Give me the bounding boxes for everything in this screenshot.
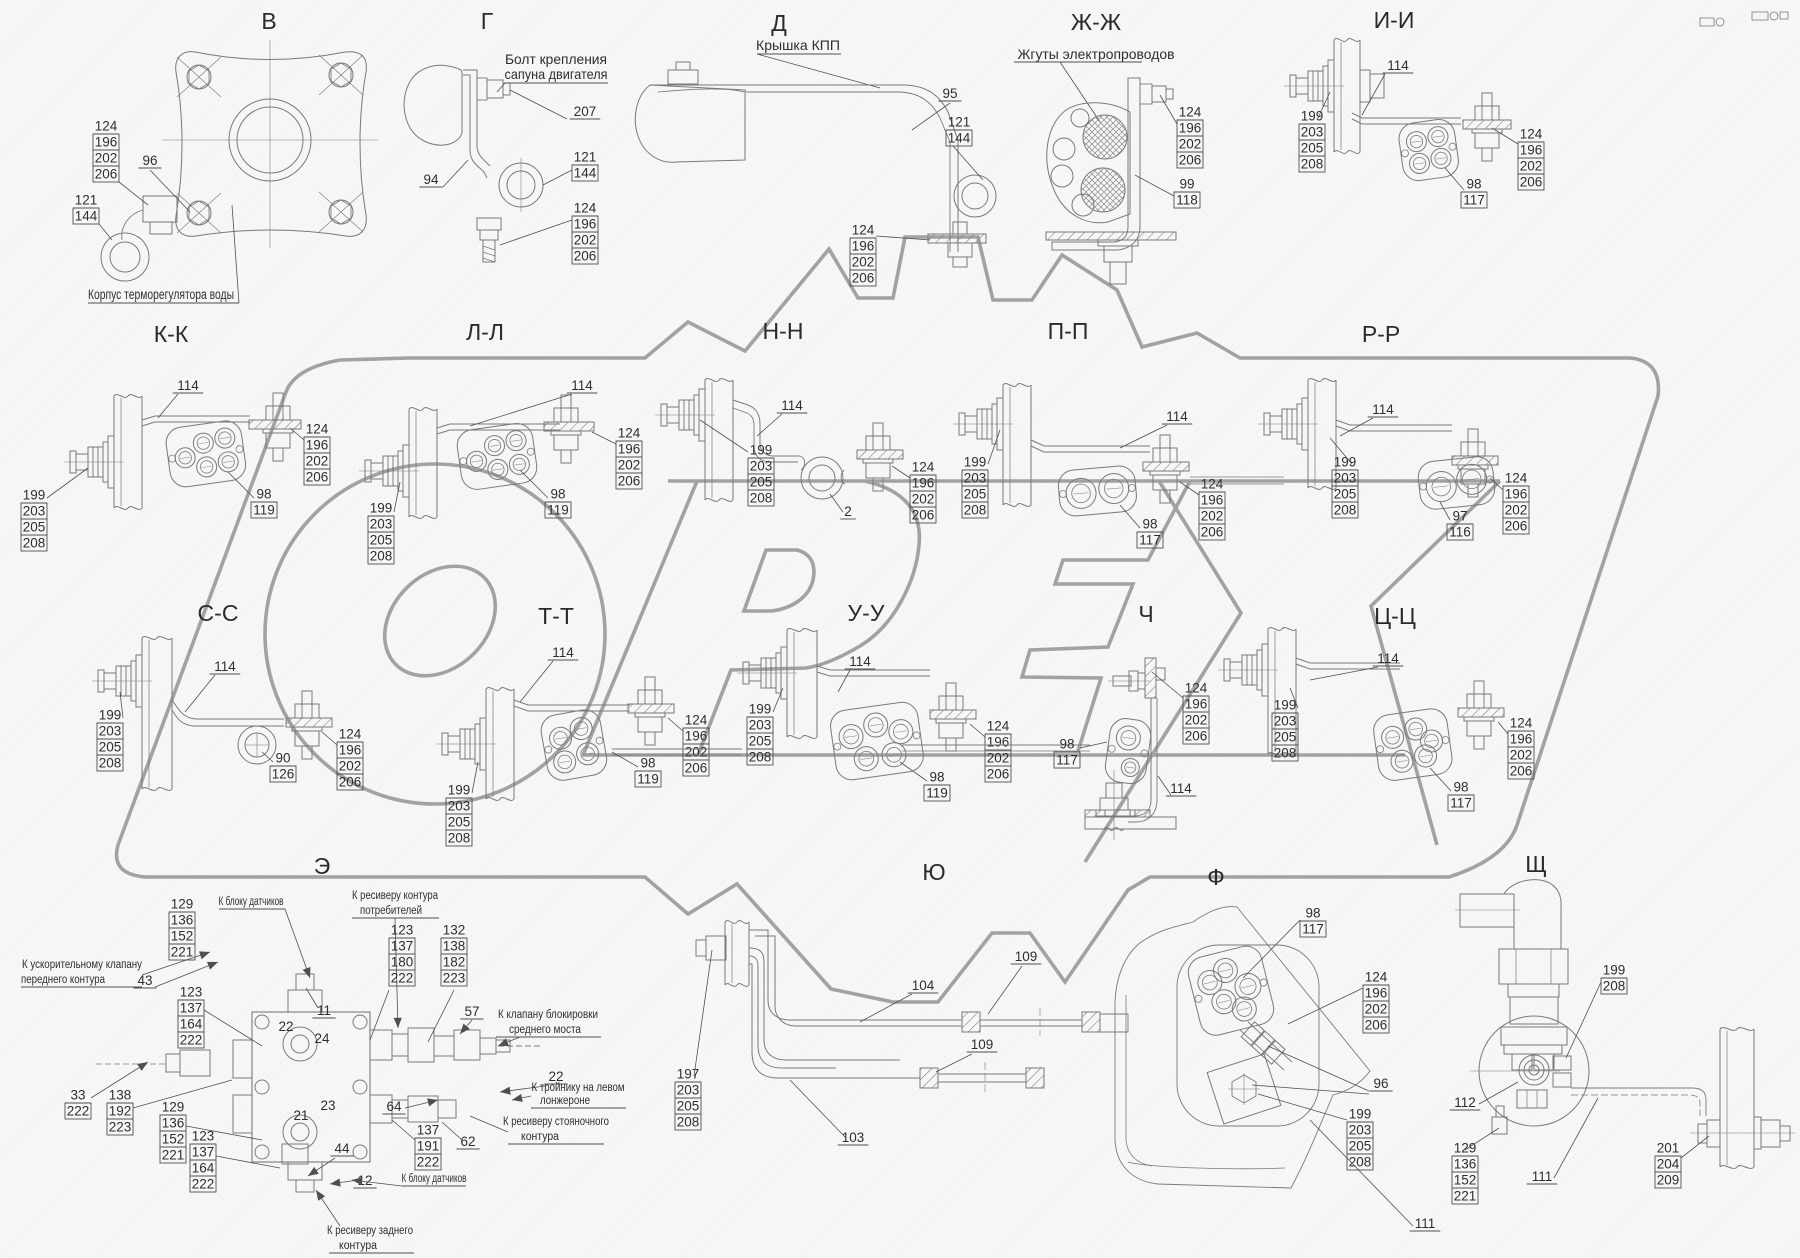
svg-text:208: 208	[23, 536, 46, 551]
svg-text:111: 111	[1532, 1169, 1553, 1184]
svg-text:Ц-Ц: Ц-Ц	[1374, 603, 1416, 629]
svg-text:152: 152	[1454, 1173, 1477, 1188]
svg-text:206: 206	[1185, 729, 1208, 744]
svg-text:206: 206	[1505, 519, 1528, 534]
svg-text:205: 205	[677, 1099, 700, 1114]
svg-text:136: 136	[171, 913, 194, 928]
svg-text:119: 119	[547, 503, 569, 518]
svg-text:К ускорительному клапану: К ускорительному клапану	[22, 959, 142, 971]
svg-text:164: 164	[180, 1017, 203, 1032]
svg-text:136: 136	[162, 1116, 185, 1131]
svg-text:129: 129	[1454, 1141, 1477, 1156]
svg-text:196: 196	[306, 438, 329, 453]
svg-text:144: 144	[574, 166, 597, 181]
svg-text:204: 204	[1657, 1157, 1680, 1172]
svg-text:203: 203	[1274, 714, 1297, 729]
svg-text:206: 206	[1510, 764, 1533, 779]
svg-text:196: 196	[339, 743, 362, 758]
svg-text:205: 205	[1334, 487, 1357, 502]
svg-text:К ресиверу контура: К ресиверу контура	[352, 890, 438, 902]
svg-text:206: 206	[574, 249, 597, 264]
svg-text:119: 119	[253, 503, 275, 518]
svg-text:124: 124	[339, 727, 362, 742]
svg-text:202: 202	[339, 759, 362, 774]
svg-text:114: 114	[1170, 781, 1192, 796]
svg-text:205: 205	[370, 533, 393, 548]
svg-text:132: 132	[443, 923, 466, 938]
svg-text:196: 196	[852, 239, 875, 254]
svg-text:206: 206	[1179, 153, 1202, 168]
svg-text:99: 99	[1179, 177, 1194, 192]
svg-text:Крышка КПП: Крышка КПП	[756, 38, 840, 53]
svg-text:138: 138	[109, 1088, 132, 1103]
svg-text:202: 202	[987, 751, 1010, 766]
svg-text:23: 23	[320, 1098, 335, 1113]
svg-text:переднего контура: переднего контура	[21, 974, 106, 986]
svg-text:203: 203	[99, 724, 122, 739]
svg-text:196: 196	[685, 729, 708, 744]
svg-text:206: 206	[339, 775, 362, 790]
svg-text:138: 138	[443, 939, 466, 954]
svg-text:223: 223	[109, 1120, 132, 1135]
svg-text:208: 208	[1603, 979, 1626, 994]
svg-text:сапуна двигателя: сапуна двигателя	[505, 67, 608, 82]
svg-text:206: 206	[95, 167, 118, 182]
svg-text:Э: Э	[314, 853, 331, 879]
svg-text:Г: Г	[481, 8, 494, 34]
svg-text:62: 62	[460, 1134, 475, 1149]
svg-text:Корпус терморегулятора воды: Корпус терморегулятора воды	[88, 287, 234, 302]
svg-text:24: 24	[314, 1031, 330, 1046]
svg-text:199: 199	[1274, 698, 1297, 713]
svg-text:144: 144	[948, 131, 971, 146]
svg-text:202: 202	[618, 458, 641, 473]
svg-text:137: 137	[391, 939, 414, 954]
svg-text:203: 203	[1334, 471, 1357, 486]
svg-text:199: 199	[23, 488, 46, 503]
svg-text:202: 202	[574, 233, 597, 248]
svg-text:221: 221	[171, 945, 194, 960]
svg-text:123: 123	[180, 985, 203, 1000]
svg-text:199: 199	[99, 708, 122, 723]
svg-text:Щ: Щ	[1525, 851, 1547, 877]
svg-text:208: 208	[749, 750, 772, 765]
svg-text:203: 203	[370, 517, 393, 532]
svg-text:111: 111	[1415, 1216, 1436, 1231]
svg-text:Т-Т: Т-Т	[538, 603, 574, 629]
svg-text:124: 124	[1520, 127, 1543, 142]
svg-text:222: 222	[180, 1033, 203, 1048]
svg-text:208: 208	[677, 1115, 700, 1130]
svg-text:208: 208	[964, 503, 987, 518]
svg-text:144: 144	[75, 209, 98, 224]
svg-text:124: 124	[1510, 716, 1533, 731]
svg-text:199: 199	[448, 783, 471, 798]
svg-text:208: 208	[750, 491, 773, 506]
svg-text:98: 98	[1453, 780, 1468, 795]
svg-text:196: 196	[1510, 732, 1533, 747]
svg-text:116: 116	[1449, 525, 1471, 540]
svg-text:205: 205	[448, 815, 471, 830]
svg-text:199: 199	[1349, 1107, 1372, 1122]
svg-text:199: 199	[964, 455, 987, 470]
svg-text:196: 196	[618, 442, 641, 457]
svg-text:114: 114	[552, 645, 574, 660]
svg-text:117: 117	[1450, 796, 1472, 811]
svg-text:206: 206	[987, 767, 1010, 782]
svg-text:208: 208	[1349, 1155, 1372, 1170]
svg-text:98: 98	[1305, 906, 1320, 921]
svg-text:222: 222	[192, 1177, 215, 1192]
svg-text:205: 205	[749, 734, 772, 749]
svg-text:196: 196	[1201, 493, 1224, 508]
svg-text:43: 43	[137, 973, 152, 988]
svg-text:221: 221	[1454, 1189, 1477, 1204]
svg-text:98: 98	[929, 770, 944, 785]
svg-text:Д: Д	[771, 10, 787, 36]
svg-text:202: 202	[852, 255, 875, 270]
svg-text:96: 96	[1373, 1076, 1388, 1091]
svg-text:124: 124	[618, 426, 641, 441]
svg-text:209: 209	[1657, 1173, 1680, 1188]
svg-text:206: 206	[306, 470, 329, 485]
svg-text:202: 202	[1510, 748, 1533, 763]
svg-text:206: 206	[618, 474, 641, 489]
svg-text:В: В	[261, 8, 276, 34]
svg-text:11: 11	[317, 1003, 331, 1018]
svg-text:208: 208	[448, 831, 471, 846]
svg-text:121: 121	[574, 150, 597, 165]
svg-text:контура: контура	[521, 1131, 560, 1143]
svg-text:202: 202	[1505, 503, 1528, 518]
svg-text:124: 124	[95, 119, 118, 134]
svg-text:114: 114	[214, 659, 236, 674]
svg-text:К-К: К-К	[154, 321, 189, 347]
svg-text:126: 126	[272, 767, 295, 782]
svg-text:90: 90	[275, 751, 290, 766]
svg-text:П-П: П-П	[1048, 318, 1089, 344]
svg-text:222: 222	[67, 1104, 90, 1119]
svg-text:164: 164	[192, 1161, 215, 1176]
svg-text:117: 117	[1056, 753, 1078, 768]
svg-text:202: 202	[685, 745, 708, 760]
svg-text:контура: контура	[339, 1240, 378, 1252]
svg-text:196: 196	[912, 476, 935, 491]
svg-text:129: 129	[162, 1100, 185, 1115]
svg-text:223: 223	[443, 971, 466, 986]
svg-text:97: 97	[1452, 509, 1467, 524]
svg-text:129: 129	[171, 897, 194, 912]
svg-text:К ресиверу заднего: К ресиверу заднего	[327, 1225, 413, 1237]
svg-text:206: 206	[852, 271, 875, 286]
svg-text:203: 203	[677, 1083, 700, 1098]
svg-text:104: 104	[912, 978, 935, 993]
svg-text:У-У: У-У	[848, 600, 885, 626]
svg-text:94: 94	[423, 172, 439, 187]
svg-text:222: 222	[417, 1155, 440, 1170]
svg-text:203: 203	[749, 718, 772, 733]
svg-text:196: 196	[987, 735, 1010, 750]
svg-text:98: 98	[1142, 517, 1157, 532]
svg-text:202: 202	[1201, 509, 1224, 524]
svg-text:Жгуты электропроводов: Жгуты электропроводов	[1018, 47, 1175, 62]
svg-text:95: 95	[942, 86, 957, 101]
svg-text:Ф: Ф	[1207, 864, 1225, 890]
svg-text:208: 208	[370, 549, 393, 564]
svg-text:208: 208	[1274, 746, 1297, 761]
svg-text:137: 137	[417, 1123, 440, 1138]
svg-text:203: 203	[964, 471, 987, 486]
svg-text:208: 208	[99, 756, 122, 771]
svg-text:117: 117	[1463, 193, 1485, 208]
svg-text:Р-Р: Р-Р	[1362, 321, 1400, 347]
svg-text:119: 119	[926, 786, 948, 801]
svg-text:121: 121	[75, 193, 98, 208]
svg-text:С-С: С-С	[198, 600, 239, 626]
svg-text:124: 124	[1505, 471, 1528, 486]
svg-text:203: 203	[750, 459, 773, 474]
svg-text:21: 21	[293, 1108, 308, 1123]
svg-text:Ю: Ю	[922, 859, 945, 885]
svg-text:124: 124	[1365, 970, 1388, 985]
svg-text:201: 201	[1657, 1141, 1680, 1156]
svg-text:114: 114	[177, 378, 199, 393]
svg-text:117: 117	[1302, 922, 1324, 937]
svg-text:98: 98	[1059, 737, 1074, 752]
svg-text:152: 152	[171, 929, 194, 944]
svg-text:137: 137	[180, 1001, 203, 1016]
svg-text:191: 191	[417, 1139, 440, 1154]
svg-text:205: 205	[23, 520, 46, 535]
svg-text:208: 208	[1334, 503, 1357, 518]
svg-text:57: 57	[464, 1004, 479, 1019]
svg-text:203: 203	[1301, 125, 1324, 140]
svg-text:182: 182	[443, 955, 466, 970]
svg-text:124: 124	[912, 460, 935, 475]
svg-text:К тройнику на левом: К тройнику на левом	[532, 1082, 625, 1094]
svg-text:И-И: И-И	[1374, 7, 1415, 33]
svg-text:потребителей: потребителей	[360, 905, 422, 917]
svg-text:196: 196	[1185, 697, 1208, 712]
svg-text:119: 119	[637, 772, 659, 787]
svg-text:196: 196	[1179, 121, 1202, 136]
svg-text:199: 199	[370, 501, 393, 516]
svg-text:199: 199	[1301, 109, 1324, 124]
svg-text:среднего моста: среднего моста	[509, 1024, 582, 1036]
svg-text:196: 196	[574, 217, 597, 232]
svg-text:202: 202	[1185, 713, 1208, 728]
svg-text:199: 199	[749, 702, 772, 717]
svg-text:114: 114	[1166, 409, 1188, 424]
svg-text:202: 202	[912, 492, 935, 507]
svg-text:205: 205	[1301, 141, 1324, 156]
svg-text:202: 202	[95, 151, 118, 166]
svg-text:205: 205	[1274, 730, 1297, 745]
svg-text:205: 205	[964, 487, 987, 502]
svg-text:2: 2	[844, 504, 852, 519]
svg-text:109: 109	[1015, 949, 1038, 964]
svg-text:123: 123	[192, 1129, 215, 1144]
svg-text:199: 199	[1603, 963, 1626, 978]
svg-text:203: 203	[448, 799, 471, 814]
svg-text:206: 206	[1520, 175, 1543, 190]
svg-text:206: 206	[1365, 1018, 1388, 1033]
svg-text:222: 222	[391, 971, 414, 986]
svg-text:203: 203	[1349, 1123, 1372, 1138]
svg-text:Ч: Ч	[1138, 601, 1153, 627]
svg-text:22: 22	[278, 1019, 293, 1034]
svg-text:114: 114	[1372, 402, 1394, 417]
svg-text:124: 124	[1179, 105, 1202, 120]
svg-text:136: 136	[1454, 1157, 1477, 1172]
svg-text:98: 98	[256, 487, 271, 502]
svg-text:98: 98	[640, 756, 655, 771]
svg-text:152: 152	[162, 1132, 185, 1147]
svg-text:196: 196	[95, 135, 118, 150]
svg-text:137: 137	[192, 1145, 215, 1160]
svg-text:117: 117	[1139, 533, 1161, 548]
svg-text:196: 196	[1505, 487, 1528, 502]
svg-text:206: 206	[685, 761, 708, 776]
svg-text:Ж-Ж: Ж-Ж	[1071, 9, 1121, 35]
svg-text:206: 206	[1201, 525, 1224, 540]
svg-text:Болт крепления: Болт крепления	[505, 52, 607, 67]
svg-text:121: 121	[948, 115, 971, 130]
svg-text:114: 114	[1377, 651, 1399, 666]
svg-text:202: 202	[1365, 1002, 1388, 1017]
svg-text:199: 199	[1334, 455, 1357, 470]
svg-text:205: 205	[750, 475, 773, 490]
svg-text:96: 96	[142, 153, 157, 168]
svg-text:К блоку датчиков: К блоку датчиков	[402, 1173, 467, 1185]
svg-text:221: 221	[162, 1148, 185, 1163]
svg-text:33: 33	[70, 1088, 85, 1103]
svg-text:202: 202	[1520, 159, 1543, 174]
svg-text:114: 114	[849, 654, 871, 669]
svg-text:124: 124	[685, 713, 708, 728]
svg-text:203: 203	[23, 504, 46, 519]
svg-text:124: 124	[574, 201, 597, 216]
svg-text:208: 208	[1301, 157, 1324, 172]
svg-text:118: 118	[1176, 193, 1198, 208]
svg-text:180: 180	[391, 955, 414, 970]
svg-text:124: 124	[1185, 681, 1208, 696]
svg-text:44: 44	[334, 1141, 350, 1156]
svg-text:98: 98	[1466, 177, 1481, 192]
svg-text:199: 199	[750, 443, 773, 458]
svg-text:206: 206	[912, 508, 935, 523]
svg-text:124: 124	[987, 719, 1010, 734]
svg-text:205: 205	[99, 740, 122, 755]
svg-text:196: 196	[1520, 143, 1543, 158]
svg-text:192: 192	[109, 1104, 132, 1119]
svg-text:114: 114	[781, 398, 803, 413]
svg-text:Л-Л: Л-Л	[466, 319, 504, 345]
svg-text:лонжероне: лонжероне	[540, 1095, 590, 1107]
svg-text:109: 109	[971, 1037, 994, 1052]
svg-text:К клапану блокировки: К клапану блокировки	[498, 1009, 598, 1021]
svg-text:124: 124	[306, 422, 329, 437]
svg-text:112: 112	[1454, 1095, 1476, 1110]
svg-text:202: 202	[306, 454, 329, 469]
svg-text:124: 124	[852, 223, 875, 238]
svg-text:114: 114	[1387, 58, 1409, 73]
svg-text:114: 114	[571, 378, 593, 393]
svg-text:205: 205	[1349, 1139, 1372, 1154]
svg-text:К ресиверу стояночного: К ресиверу стояночного	[503, 1116, 609, 1128]
svg-text:98: 98	[550, 487, 565, 502]
svg-text:196: 196	[1365, 986, 1388, 1001]
svg-text:197: 197	[677, 1067, 700, 1082]
svg-text:207: 207	[574, 104, 597, 119]
svg-text:202: 202	[1179, 137, 1202, 152]
svg-text:123: 123	[391, 923, 414, 938]
svg-text:Н-Н: Н-Н	[763, 318, 804, 344]
svg-text:К блоку датчиков: К блоку датчиков	[219, 896, 284, 908]
svg-text:64: 64	[386, 1099, 402, 1114]
